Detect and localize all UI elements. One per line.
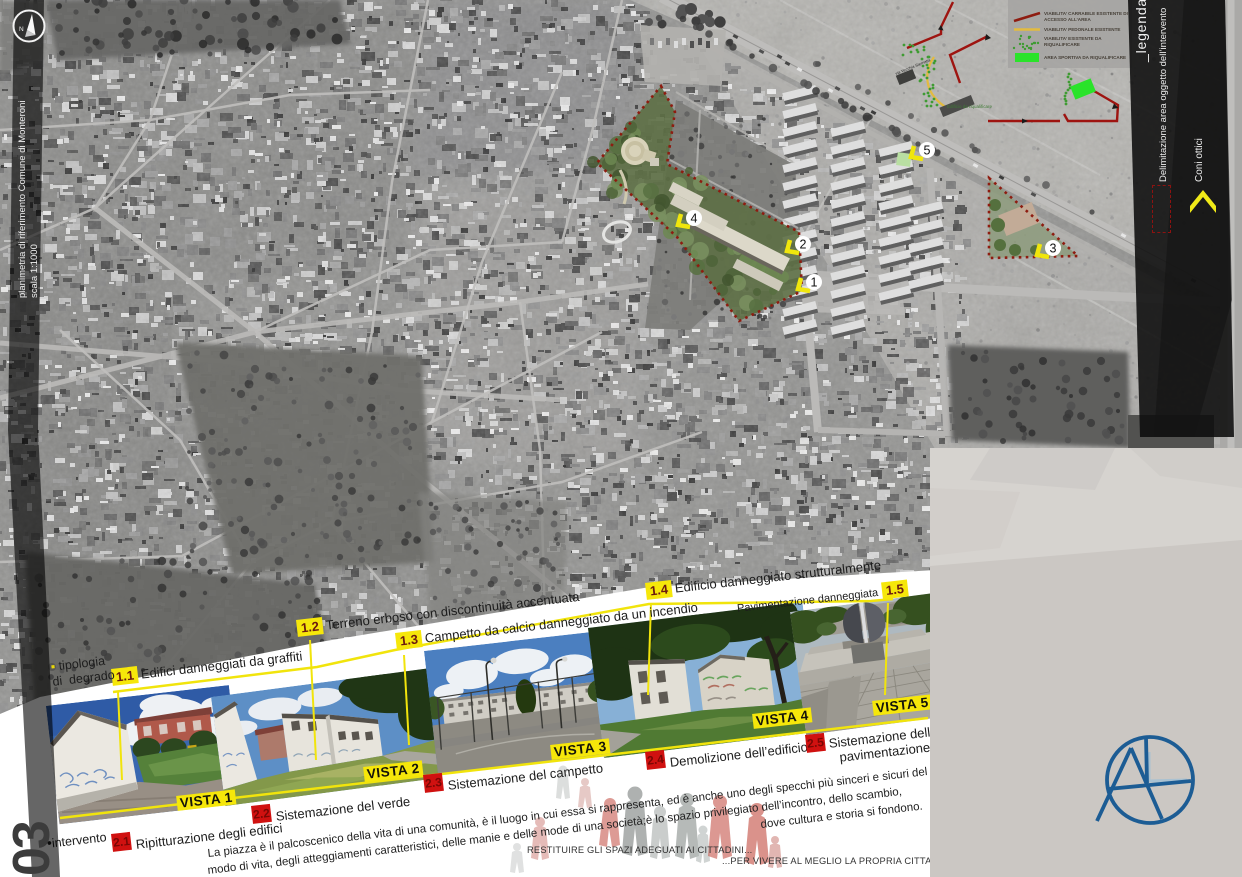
svg-text:Edificio da riqualificare: Edificio da riqualificare xyxy=(947,104,993,109)
svg-text:VIABILITA’ ESISTENTE DA: VIABILITA’ ESISTENTE DA xyxy=(1044,36,1102,41)
svg-text:AREA SPORTIVA DA RIQUALIFICARE: AREA SPORTIVA DA RIQUALIFICARE xyxy=(1044,55,1126,60)
svg-text:VIABILITA’ PEDONALE ESISTENTE: VIABILITA’ PEDONALE ESISTENTE xyxy=(1044,27,1121,32)
svg-text:2: 2 xyxy=(800,238,807,252)
svg-text:3: 3 xyxy=(1050,242,1057,256)
svg-text:VIABILITA’ CARRABILE ESISTENTE: VIABILITA’ CARRABILE ESISTENTE DI xyxy=(1044,11,1128,16)
svg-text:5: 5 xyxy=(924,144,931,158)
svg-text:1: 1 xyxy=(811,276,818,290)
svg-text:ACCESSO ALL’AREA: ACCESSO ALL’AREA xyxy=(1044,17,1091,22)
svg-text:4: 4 xyxy=(691,212,698,226)
svg-text:N: N xyxy=(19,26,24,33)
svg-text:RIQUALIFICARE: RIQUALIFICARE xyxy=(1044,42,1080,47)
